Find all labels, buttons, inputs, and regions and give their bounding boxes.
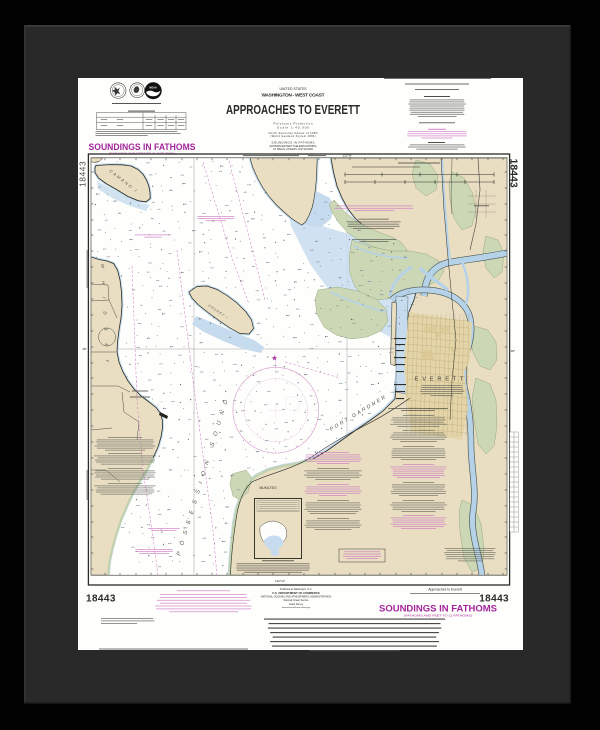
- svg-text:NOAA: NOAA: [150, 86, 158, 89]
- svg-text:18443: 18443: [86, 594, 116, 605]
- svg-text:(World Geodetic System 1984): (World Geodetic System 1984): [271, 135, 316, 138]
- svg-text:UNITED STATES: UNITED STATES: [280, 87, 308, 91]
- svg-text:SOUNDINGS IN FATHOMS: SOUNDINGS IN FATHOMS: [89, 142, 196, 152]
- svg-text:Approaches to Everett: Approaches to Everett: [428, 588, 462, 592]
- svg-text:Coast Survey: Coast Survey: [289, 603, 304, 606]
- svg-text:48°: 48°: [511, 349, 516, 353]
- svg-text:National Ocean Service: National Ocean Service: [283, 599, 309, 602]
- svg-text:www.nauticalcharts.noaa.gov: www.nauticalcharts.noaa.gov: [282, 606, 311, 609]
- svg-text:SOUNDINGS IN FATHOMS: SOUNDINGS IN FATHOMS: [272, 141, 315, 145]
- svg-text:EVERETT: EVERETT: [415, 377, 467, 383]
- svg-text:122°W: 122°W: [342, 154, 351, 158]
- svg-text:NATIONAL OCEANIC AND ATMOSPHER: NATIONAL OCEANIC AND ATMOSPHERIC ADMINIS…: [261, 596, 332, 599]
- svg-text:(FATHOMS AND FEET TO 11 FATHOM: (FATHOMS AND FEET TO 11 FATHOMS): [404, 613, 472, 617]
- svg-text:48°: 48°: [82, 347, 87, 351]
- svg-text:WASHINGTON - WEST COAST: WASHINGTON - WEST COAST: [262, 92, 325, 98]
- svg-text:Scale 1:40,000: Scale 1:40,000: [277, 126, 309, 130]
- svg-text:U.S. DEPARTMENT OF COMMERCE: U.S. DEPARTMENT OF COMMERCE: [272, 591, 320, 595]
- svg-text:APPROACHES TO EVERETT: APPROACHES TO EVERETT: [226, 103, 360, 117]
- svg-text:MUKILTEO: MUKILTEO: [259, 486, 276, 490]
- svg-text:18443: 18443: [78, 161, 88, 187]
- svg-text:AT MEAN LOWER LOW WATER: AT MEAN LOWER LOW WATER: [273, 147, 313, 151]
- svg-text:122°10': 122°10': [275, 579, 286, 583]
